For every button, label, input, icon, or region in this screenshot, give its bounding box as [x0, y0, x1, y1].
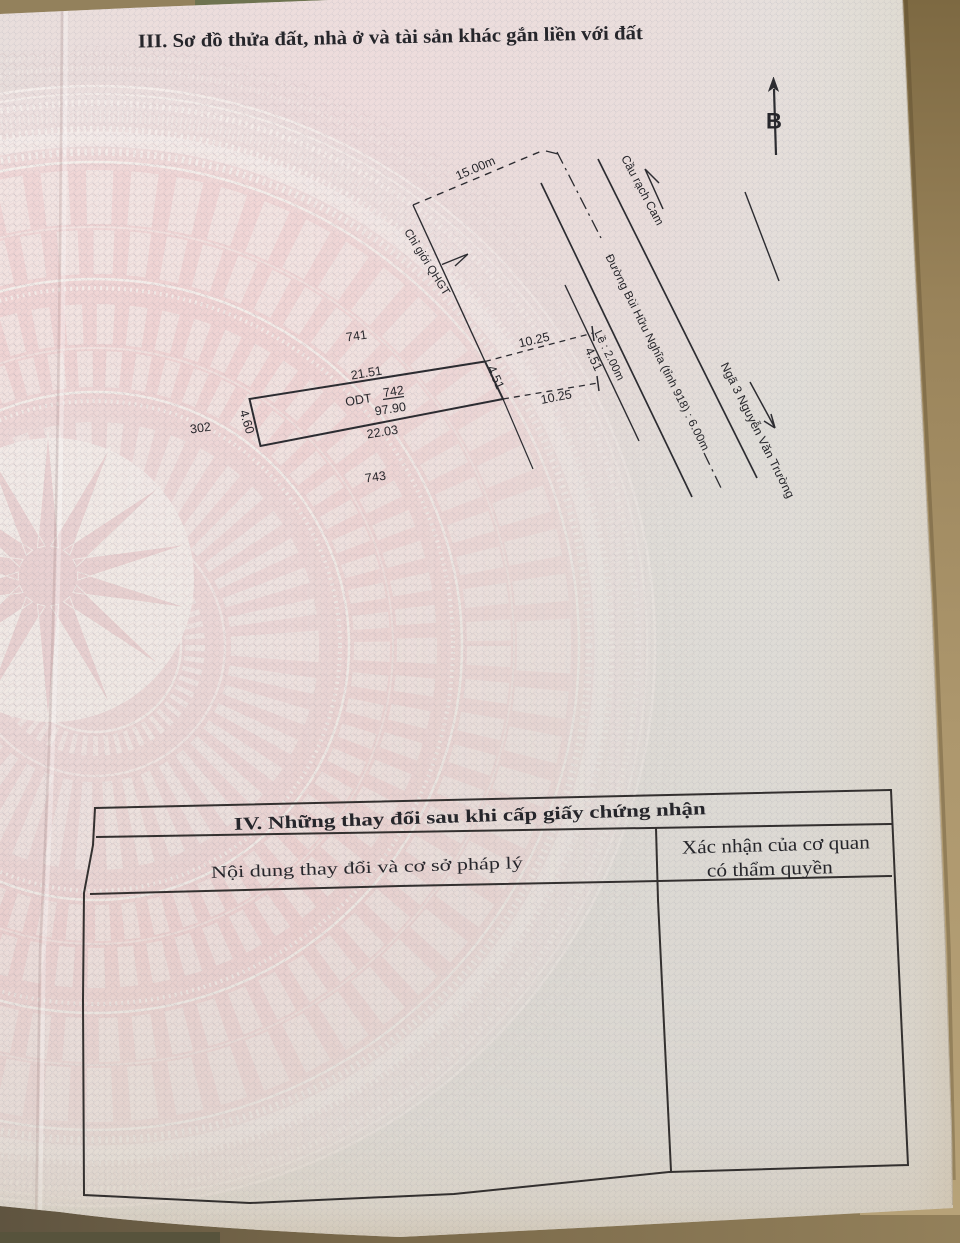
- svg-text:741: 741: [345, 328, 368, 345]
- svg-text:B: B: [766, 109, 782, 134]
- svg-text:có thẩm quyền: có thẩm quyền: [707, 857, 834, 882]
- svg-text:302: 302: [189, 420, 212, 437]
- svg-text:743: 743: [364, 469, 387, 486]
